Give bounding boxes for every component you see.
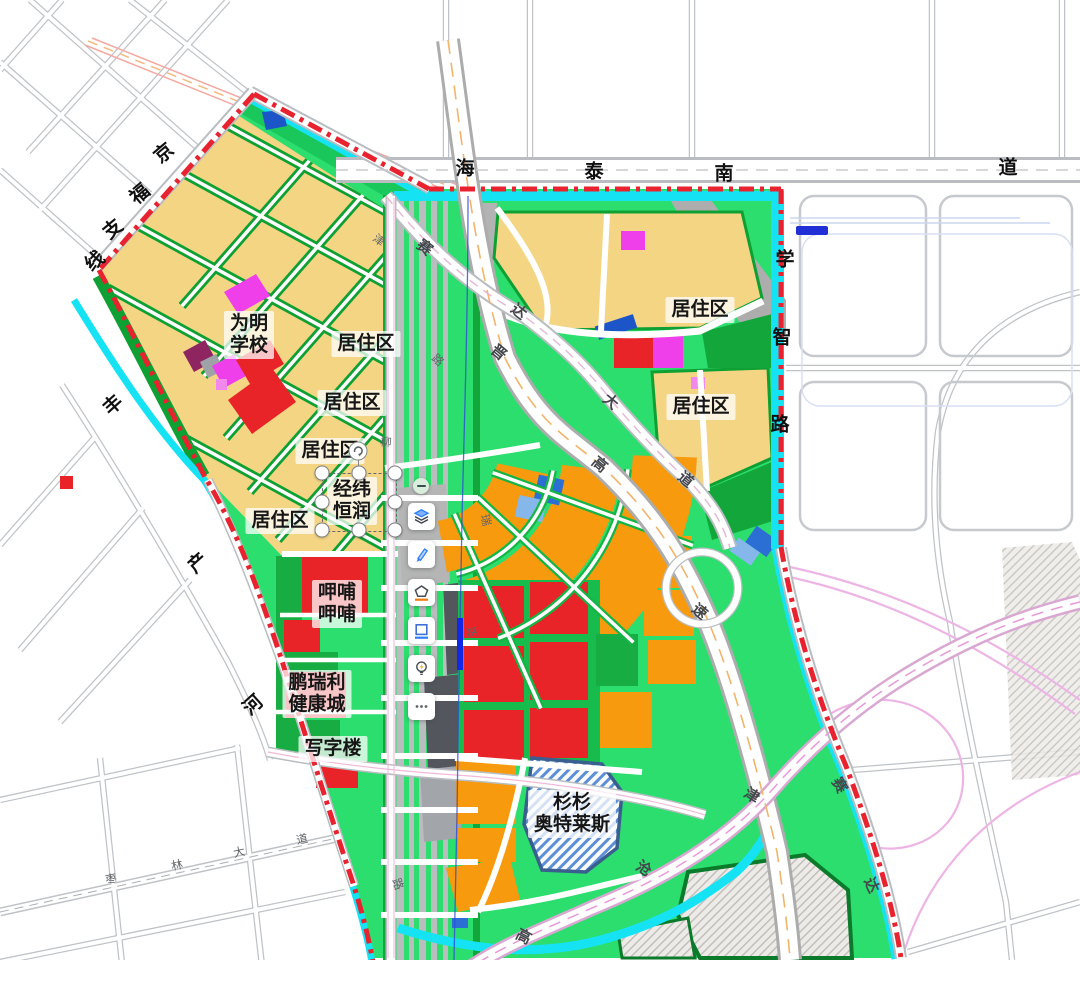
road-label: 枣 [104,870,119,888]
area-label-residential[interactable]: 居住区 [666,394,735,420]
more-button[interactable] [408,693,435,720]
road-label: 路 [770,410,789,437]
road-label: 道 [998,153,1017,180]
polygon-icon [413,584,430,601]
selection-handle-sw[interactable] [315,523,330,538]
area-label-residential[interactable]: 居住区 [331,331,400,357]
lightbulb-icon [413,660,430,677]
hatched-area-right [1002,542,1080,780]
area-label-office-building[interactable]: 写字楼 [298,736,367,762]
area-label-residential[interactable]: 居住区 [317,390,386,416]
road-label: 大 [232,843,247,861]
bottom-margin [0,960,1080,1001]
ellipsis-icon [413,698,430,715]
shape-button[interactable] [408,579,435,606]
selection-handle-w[interactable] [315,494,330,509]
selection-handle-e[interactable] [388,494,403,509]
road-label: 海 [455,154,474,181]
road-label: 柳 [380,434,393,451]
road-label: 泰 [584,157,603,184]
selection-handle-ne[interactable] [388,466,403,481]
metro-station-bar [796,226,828,235]
tips-button[interactable] [408,655,435,682]
draw-button[interactable] [408,541,435,568]
area-label-shanshan-outlets[interactable]: 杉杉奥特莱斯 [528,790,616,838]
area-label-pengruili-health-city[interactable]: 鹏瑞利健康城 [282,670,351,718]
layers-button[interactable] [408,503,435,530]
area-label-xiabu-xiabu[interactable]: 呷哺呷哺 [312,580,362,628]
brush-icon [413,546,430,563]
road-label: 智 [772,323,791,350]
rotate-icon [353,446,364,457]
selection-handle-se[interactable] [388,523,403,538]
rectangle-button[interactable] [408,617,435,644]
river-north [394,191,782,201]
road-label: 学 [775,245,794,272]
selection-handle-n[interactable] [351,466,366,481]
layers-icon [413,508,430,525]
area-label-residential[interactable]: 居住区 [665,297,734,323]
selection-handle-nw[interactable] [315,466,330,481]
collapse-button[interactable] [413,478,429,494]
road-label: 南 [714,159,733,186]
minus-icon [417,485,426,487]
rectangle-icon [413,622,430,639]
area-label-residential[interactable]: 居住区 [245,508,314,534]
rotate-handle[interactable] [349,442,368,461]
selection-handle-s[interactable] [351,523,366,538]
road-label: 林 [170,856,185,874]
area-label-weiming-school[interactable]: 为明学校 [224,311,274,359]
planning-map-app: 京 福 支 线 海 泰 南 道 学 智 路 丰 产 河 赛 达 大 道 晋 高 … [0,0,1080,1001]
road-label: 道 [295,830,310,848]
